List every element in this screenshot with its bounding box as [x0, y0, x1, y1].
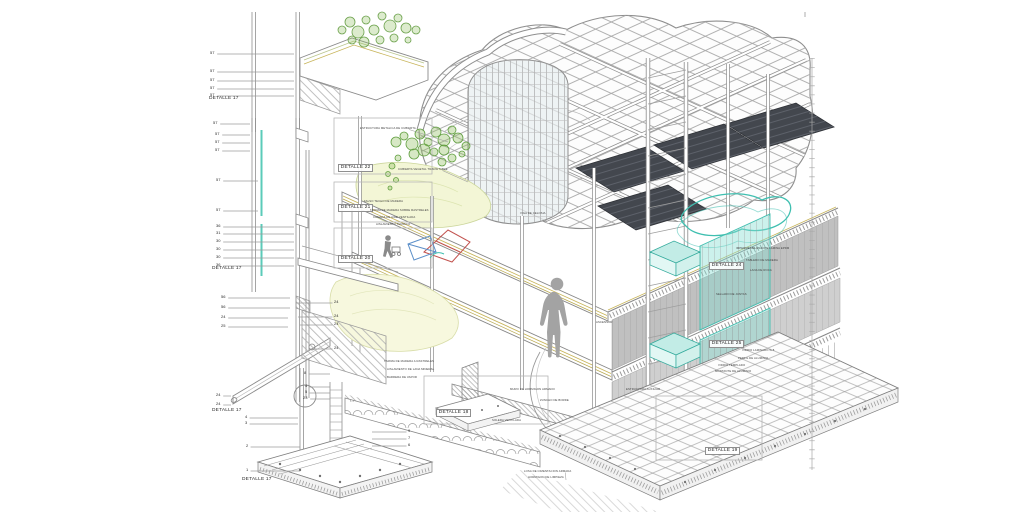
foundation-detail-left [258, 368, 432, 498]
axonometric-drawing [0, 0, 1024, 512]
elevator-cab [650, 241, 700, 276]
facade-detail-top [252, 12, 428, 132]
architectural-sheet: DETALLE 17DETALLE 17DETALLE 17DETALLE 17… [0, 0, 1024, 512]
